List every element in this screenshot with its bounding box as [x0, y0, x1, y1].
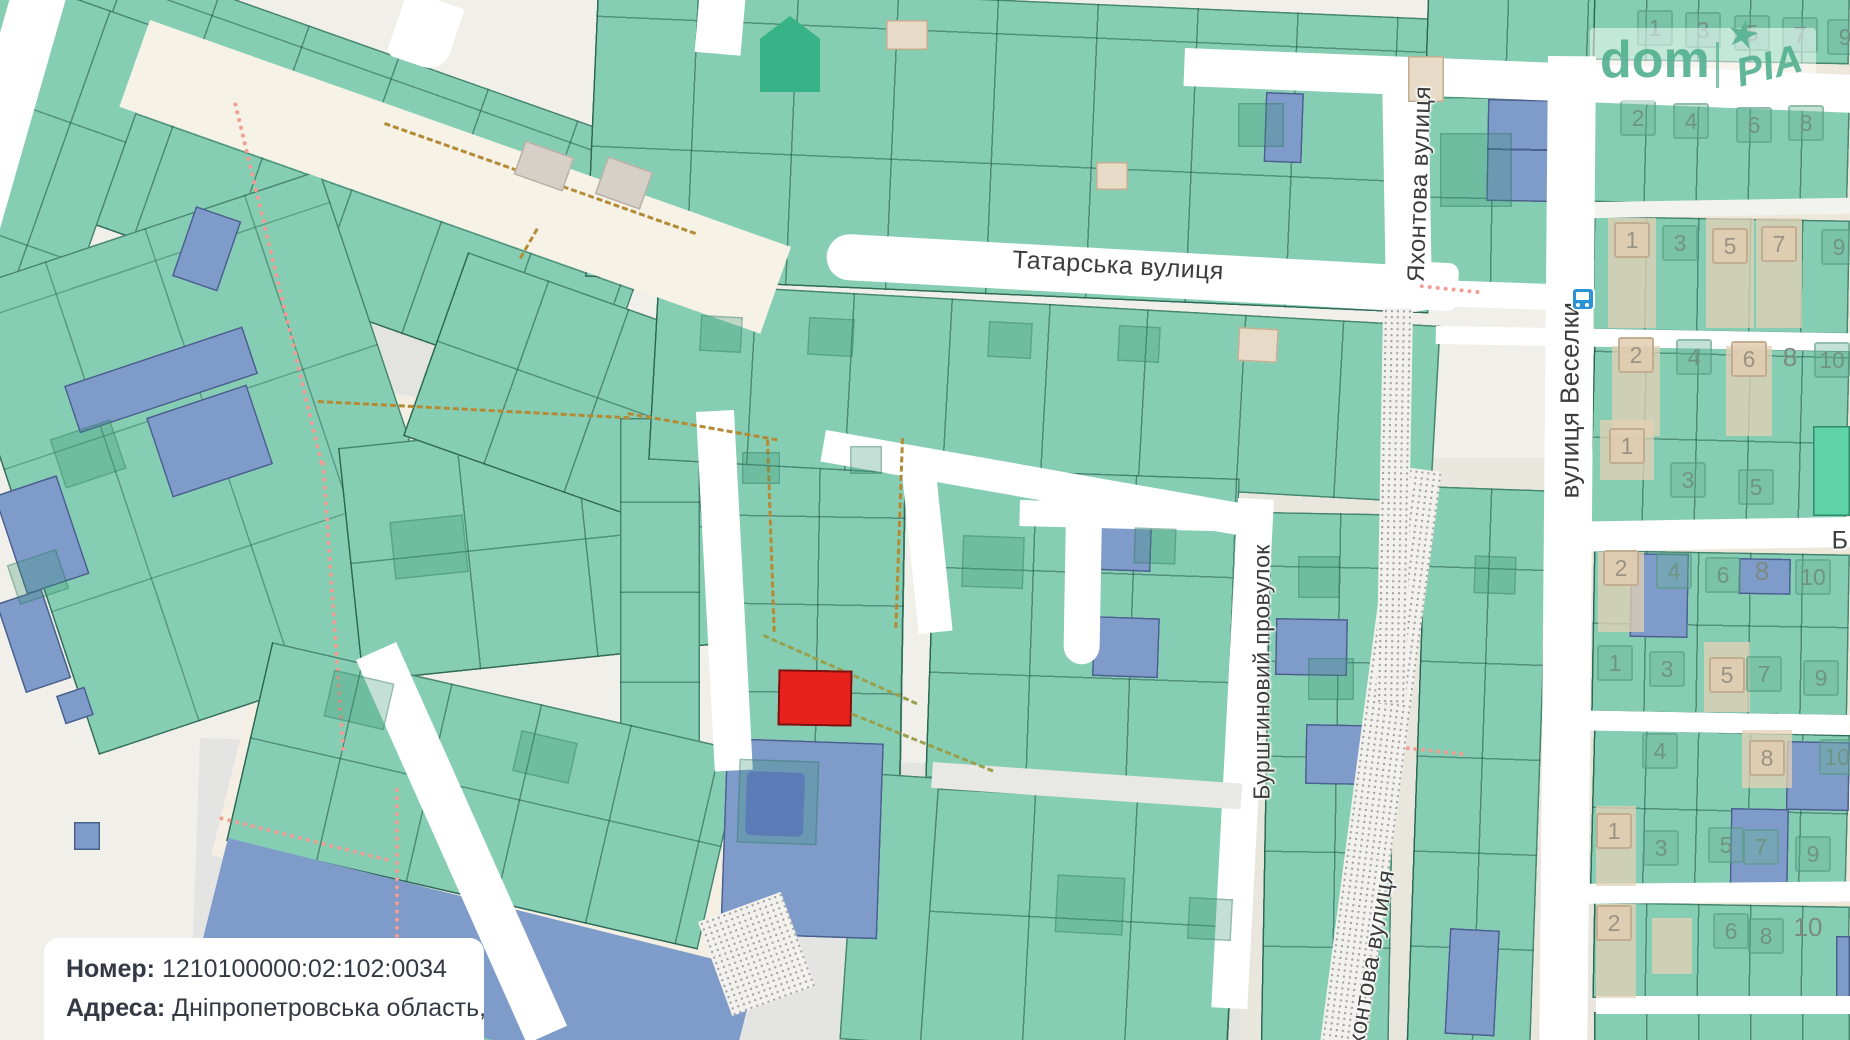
parcel-block	[1594, 1012, 1850, 1040]
building	[389, 514, 469, 579]
street-label-burshtynovyi: Бурштиновий провулок	[1249, 544, 1276, 800]
building	[1238, 103, 1284, 147]
parcel-number-chip: 7	[1761, 226, 1797, 262]
building	[850, 446, 882, 474]
selected-parcel[interactable]	[778, 669, 853, 726]
road	[1560, 517, 1850, 552]
parcel-number-chip: 1	[1614, 222, 1650, 258]
parcel-number-chip: 10	[1795, 559, 1831, 595]
building	[807, 317, 855, 357]
building	[1187, 897, 1233, 941]
parcel-number-chip: 2	[1620, 100, 1656, 136]
parcel-number-chip: 4	[1676, 339, 1712, 375]
building	[1308, 658, 1354, 700]
parcel-address-label: Адреса:	[66, 994, 165, 1022]
building	[886, 20, 928, 50]
parcel-number-chip: 9	[1821, 229, 1850, 265]
parcel-number-chip: 8	[1749, 740, 1785, 776]
parcel-number-chip: 9	[1827, 19, 1850, 55]
building	[961, 535, 1025, 589]
parcel-number-chip: 10	[1814, 342, 1850, 378]
parcel-number-chip: 6	[1713, 913, 1749, 949]
building	[1298, 556, 1340, 598]
bus-window	[1576, 292, 1589, 300]
parcel-number-chip: 9	[1803, 660, 1839, 696]
building	[742, 452, 780, 484]
bus-stop-icon	[1571, 287, 1595, 311]
parcel-number-label: Номер:	[66, 955, 155, 983]
parcel-bright-green	[1813, 426, 1850, 516]
bus-wheel	[1576, 303, 1580, 307]
parcel-number-chip: 5	[1708, 827, 1744, 863]
building	[1473, 555, 1516, 594]
building	[1237, 327, 1279, 363]
parcel-number-chip: 3	[1662, 225, 1698, 261]
boundary-dotted-red	[395, 788, 399, 938]
road-dead-end	[1063, 512, 1102, 665]
bus-wheel	[1585, 303, 1589, 307]
parcel-number-chip: 6	[1731, 341, 1767, 377]
parcel-number-chip: 4	[1656, 553, 1692, 589]
road	[1596, 996, 1850, 1014]
map-canvas[interactable]: 1357924681357924681013524681013579481013…	[0, 0, 1850, 1040]
parcel-number-chip: 5	[1738, 469, 1774, 505]
parcel-beige-cell	[1652, 918, 1692, 974]
parcel-number-chip: 3	[1649, 651, 1685, 687]
parcel-block	[620, 418, 700, 773]
watermark-dom-text: dom	[1600, 30, 1710, 90]
watermark-divider	[1716, 42, 1719, 88]
street-label-partial-b: Б	[1832, 527, 1849, 556]
building	[699, 315, 743, 353]
parcel-number-chip: 2	[1618, 337, 1654, 373]
parcel-number-chip: 3	[1643, 830, 1679, 866]
parcel-number-chip: 2	[1603, 550, 1639, 586]
building	[1055, 874, 1126, 935]
parcel-info-card: Номер: 1210100000:02:102:0034 Адреса: Дн…	[44, 938, 484, 1040]
street-label-veselky: вулиця Веселки	[1555, 302, 1586, 499]
parcel-number-value: 1210100000:02:102:0034	[162, 955, 447, 983]
parcel-number-chip: 5	[1712, 228, 1748, 264]
building-parcel	[1092, 616, 1160, 678]
parcel-number-chip: 8	[1744, 553, 1780, 589]
parcel-address-row: Адреса: Дніпропетровська область,	[66, 994, 462, 1023]
parcel-number-chip: 1	[1609, 428, 1645, 464]
parcel-number-chip: 9	[1795, 836, 1831, 872]
parcel-number-chip: 7	[1743, 829, 1779, 865]
building-parcel	[1444, 928, 1499, 1036]
parcel-number-chip: 8	[1788, 105, 1824, 141]
building	[1117, 325, 1161, 363]
parcel-number-chip: 10	[1790, 909, 1826, 945]
building	[1096, 162, 1128, 190]
road	[695, 0, 746, 56]
building	[1133, 527, 1176, 564]
parcel-number-chip: 1	[1597, 645, 1633, 681]
parcel-number-chip: 4	[1673, 103, 1709, 139]
building-blue-dark	[745, 771, 805, 837]
parcel-address-value: Дніпропетровська область,	[172, 994, 486, 1022]
parcel-number-chip: 8	[1748, 918, 1784, 954]
building	[1440, 133, 1512, 207]
parcel-number-chip: 1	[1596, 813, 1632, 849]
parcel-number-chip: 2	[1596, 905, 1632, 941]
parcel-number-chip: 4	[1642, 733, 1678, 769]
parcel-number-chip: 3	[1670, 462, 1706, 498]
parcel-number-chip: 7	[1746, 656, 1782, 692]
parcel-number-chip: 6	[1736, 107, 1772, 143]
parcel-number-chip: 10	[1819, 739, 1850, 775]
watermark: dom ★ РІА	[1590, 28, 1816, 102]
parcel-number-chip: 8	[1772, 339, 1808, 375]
parcel-number-chip: 6	[1705, 557, 1741, 593]
building	[987, 321, 1033, 359]
parcel-number-row: Номер: 1210100000:02:102:0034	[66, 955, 462, 984]
road-veselky	[1539, 56, 1596, 1040]
parcel-number-chip: 5	[1709, 657, 1745, 693]
building-parcel	[74, 822, 100, 850]
